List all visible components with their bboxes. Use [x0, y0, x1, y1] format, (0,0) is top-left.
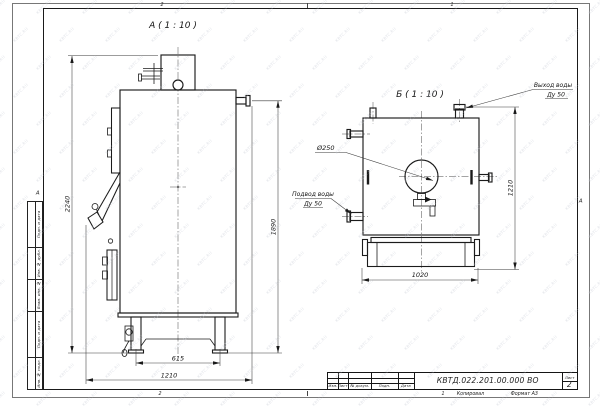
margin-cell-podp-i-data-2: Подп. и дата — [28, 312, 42, 358]
fold-mark-left: А — [32, 188, 44, 197]
title-block: Изм. Лист № докум. Подп. Дата КВТД.022.2… — [327, 372, 578, 390]
fold-mark-right: А — [575, 196, 587, 205]
footer-copied-label: Копировал — [450, 391, 490, 397]
zone-divider-tick-top — [307, 3, 308, 8]
header-list: Лист — [338, 383, 348, 388]
drawing-frame — [43, 8, 578, 390]
zone-label-top-left: 2 — [150, 2, 174, 8]
sheet-number: 2 — [562, 381, 577, 389]
margin-strip: Подп. и дата Инв. № дубл. Взам. инв. № П… — [27, 201, 43, 390]
margin-cell-vzam-inv: Взам. инв. № — [28, 280, 42, 313]
title-block-line — [328, 378, 414, 379]
margin-cell-inv-podl: Инв. № подл. — [28, 358, 42, 390]
zone-label-bottom-left: 2 — [148, 391, 172, 397]
header-izm: Изм. — [328, 383, 338, 388]
zone-label-top-right: 1 — [440, 2, 464, 8]
header-data: Дата — [398, 383, 414, 388]
margin-cell-inv-dubl: Инв. № дубл. — [28, 248, 42, 280]
zone-label-bottom-right: 1 — [437, 391, 449, 397]
header-podp: Подп. — [371, 383, 398, 388]
header-n-dokum: № докум. — [348, 383, 371, 388]
zone-divider-tick-bottom — [307, 391, 308, 397]
footer-format-label: Формат А3 — [504, 391, 544, 397]
drawing-sheet: { "watermark": {"text": "КВТС.RU"}, "she… — [0, 0, 600, 400]
document-number: КВТД.022.201.00.000 ВО — [414, 373, 563, 389]
margin-cell-podp-i-data-1: Подп. и дата — [28, 202, 42, 248]
